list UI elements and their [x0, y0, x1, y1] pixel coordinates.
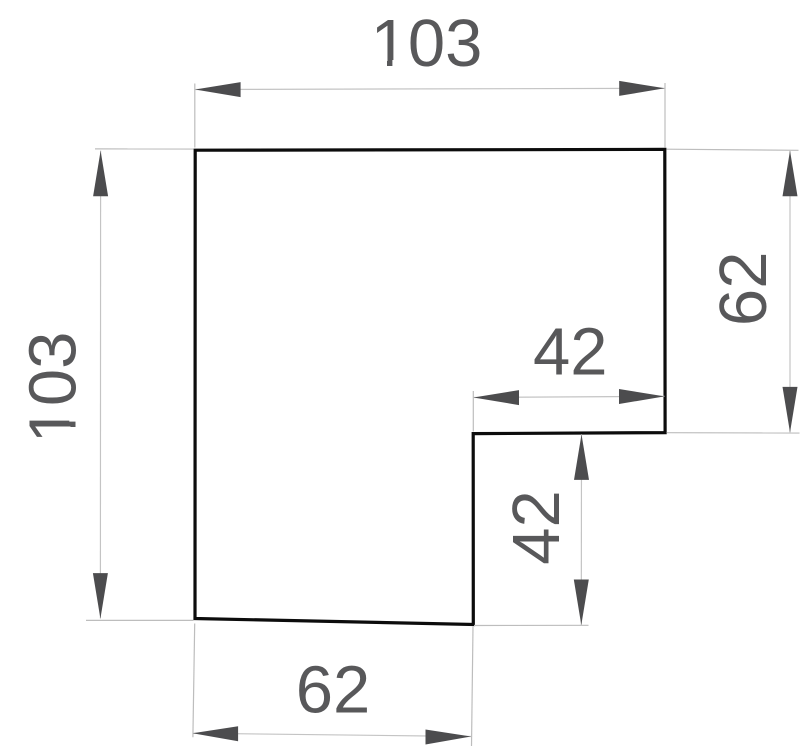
svg-text:42: 42 — [499, 490, 574, 565]
svg-text:62: 62 — [706, 252, 781, 327]
svg-text:42: 42 — [533, 315, 608, 390]
svg-text:103: 103 — [371, 6, 483, 81]
svg-text:103: 103 — [15, 332, 90, 444]
svg-text:62: 62 — [296, 653, 371, 728]
